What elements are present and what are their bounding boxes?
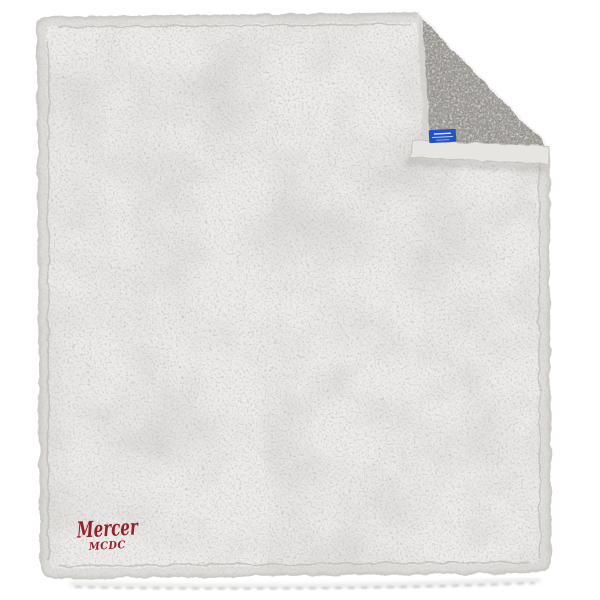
logo-subtext: MCDC — [88, 539, 127, 553]
brand-tag — [429, 129, 457, 143]
product-photo: Mercer MCDC — [0, 0, 600, 600]
blanket-photo-svg: Mercer MCDC — [0, 0, 600, 600]
